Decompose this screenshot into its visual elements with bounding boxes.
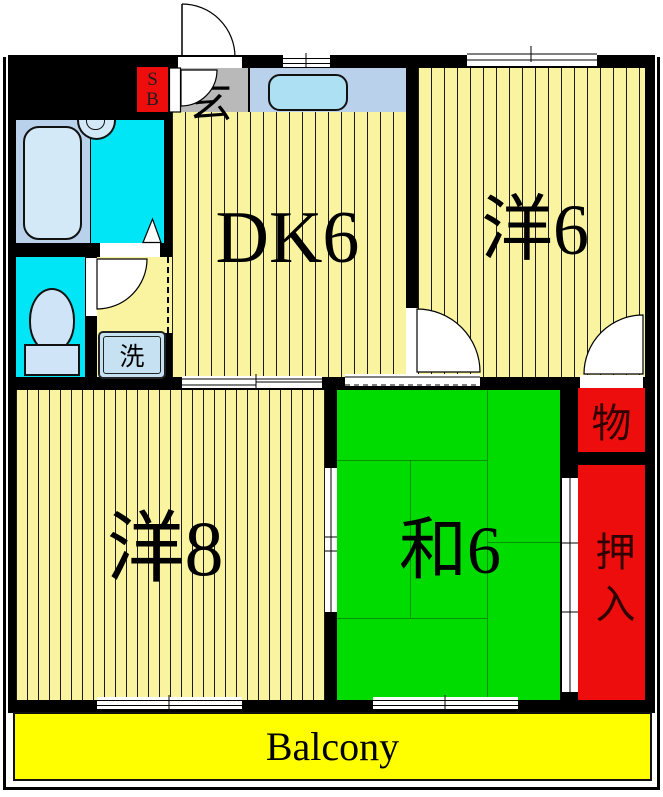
storage-label: 物	[578, 388, 645, 452]
japanese6-balcony-window	[373, 697, 518, 709]
washing-machine-inner: 洗	[103, 336, 161, 374]
bathtub	[23, 126, 82, 240]
dk-west6-door-opening	[406, 308, 418, 374]
shoe-box-label-b: B	[146, 90, 159, 110]
balcony-label: Balcony	[266, 723, 399, 770]
opening-dk-japanese6	[345, 374, 480, 386]
fusuma-japanese6-closet	[562, 478, 578, 692]
japanese6-label: 和6	[370, 502, 530, 584]
western6-label: 洋6	[430, 182, 640, 262]
shoe-box-label-s: S	[147, 70, 158, 90]
closet-label: 押入	[578, 465, 645, 700]
frame-right	[657, 57, 660, 790]
sliding-door-west8-japanese6	[325, 468, 337, 612]
western8-balcony-window	[97, 697, 242, 709]
toilet-tank	[24, 344, 80, 376]
tatami-line	[337, 460, 487, 461]
washroom-door-opening	[100, 243, 160, 257]
frame-left	[3, 57, 6, 790]
western6-window	[467, 48, 597, 66]
kitchen-window	[283, 55, 330, 67]
washing-machine: 洗	[98, 331, 166, 379]
dk-label: DK6	[175, 196, 400, 280]
frame-bottom	[3, 787, 660, 790]
entrance-door-arc	[182, 4, 235, 57]
toilet-door-opening	[86, 258, 97, 316]
hallway-boundary-dashed-line	[167, 257, 169, 333]
floorplan-canvas: 洗 S B Balcony DK6 洋6 洋8 和6 玄 物 押入	[0, 0, 663, 797]
western8-label: 洋8	[80, 496, 250, 588]
tatami-line	[337, 618, 487, 619]
sliding-door-dk-west8	[182, 376, 322, 388]
kitchen-sink	[268, 74, 348, 111]
shoe-box: S B	[137, 67, 168, 112]
entrance-label: 玄	[172, 68, 248, 128]
toilet-bowl	[29, 288, 75, 352]
washer-label: 洗	[119, 337, 144, 373]
balcony: Balcony	[13, 712, 652, 781]
